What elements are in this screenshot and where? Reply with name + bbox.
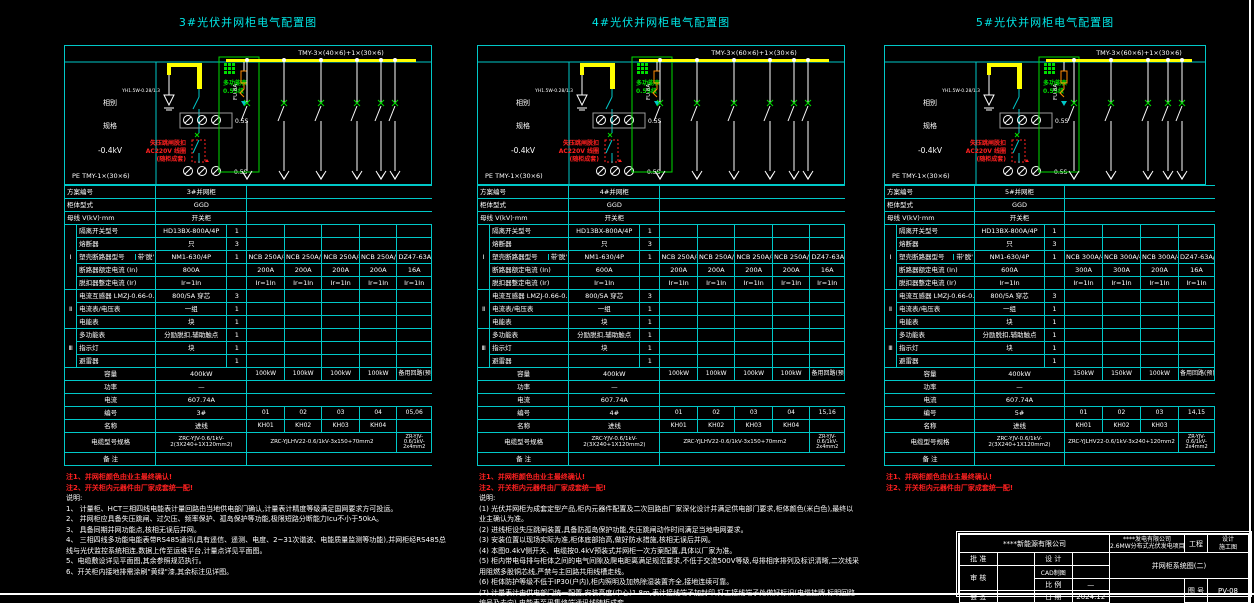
- arrester-label: YH1.5W-0.28/1.3: [534, 88, 573, 94]
- busbar-label: TMY-3×(60×6)+1×(30×6): [710, 49, 797, 57]
- feeder-cell: [772, 303, 810, 316]
- feeder-cell: [697, 342, 735, 355]
- spec-label: 规格: [103, 121, 117, 130]
- summary-feeder: KH02: [697, 420, 735, 433]
- row-value: 只: [975, 238, 1045, 251]
- feeder-cell: 16A: [1179, 264, 1215, 277]
- table-row: 方案编号3#并网柜: [65, 186, 432, 199]
- table-row: 母线 V(kV)·mm开关柜: [65, 212, 432, 225]
- summary-feeder: 100kW: [697, 368, 735, 381]
- row-label: 电流互感器 LMZJ-0.66-0.5级: [77, 290, 156, 303]
- summary-label: 容量: [478, 368, 569, 381]
- table-row: 熔断器只3: [478, 238, 845, 251]
- spec-label: 规格: [923, 121, 937, 130]
- header-label: 柜体型式: [478, 199, 569, 212]
- feeder-cell: 200A: [735, 264, 773, 277]
- table-row: 备 注: [65, 453, 432, 466]
- feeder-cell: [322, 342, 360, 355]
- table-row: 脱扣器整定电流 (Ir)Ir=1InIr=1InIr=1InIr=1InIr=1…: [885, 277, 1215, 290]
- table-row: 备 注: [478, 453, 845, 466]
- summary-feeder: 100kW: [247, 368, 285, 381]
- note-line: (1) 光伏并网柜为成套定型产品,柜内元器件配置及二次回路由厂家深化设计并满足供…: [479, 504, 859, 525]
- summary-feeder: 备用回路(预留): [1179, 368, 1215, 381]
- cable-span: ZRC-YJLHV22-0.6/1kV-3x150+70mm2: [660, 433, 810, 453]
- table-row: Ⅰ隔离开关型号HD13BX-800A/4P1: [478, 225, 845, 238]
- row-label: 指示灯: [897, 342, 975, 355]
- feeder-cell: 200A: [284, 264, 322, 277]
- summary-feeder: KH01: [247, 420, 285, 433]
- summary-feeder: KH03: [322, 420, 360, 433]
- summary-label: 电流: [885, 394, 975, 407]
- table-row: 电能表块1: [885, 316, 1215, 329]
- row-label: 电流表/电压表: [77, 303, 156, 316]
- row-value: 分励脱扣,辅助触点: [975, 329, 1045, 342]
- feeder-cell: [247, 225, 285, 238]
- feeder-cell: [810, 225, 845, 238]
- cable-last: ZR-YJV-0.6/1kV-2x4mm2: [810, 433, 845, 453]
- table-row: Ⅰ隔离开关型号HD13BX-800A/4P1: [65, 225, 432, 238]
- feeder-cell: [1179, 342, 1215, 355]
- note-line: 1、 计量柜、HCT三相四线电能表计量回路由当地供电部门确认,计量表计精度等级满…: [66, 504, 446, 515]
- row-value: 600A: [975, 264, 1045, 277]
- feeder-cell: [397, 316, 432, 329]
- feeder-cell: [1141, 225, 1179, 238]
- row-label: 熔断器: [77, 238, 156, 251]
- table-row: 指示灯块1: [65, 342, 432, 355]
- feeder-cell: [1065, 290, 1103, 303]
- project-name: ****发电有限公司2.6MW分布式光伏发电项目: [1110, 535, 1185, 553]
- feeder-cell: [810, 342, 845, 355]
- summary-feeder: 备用回路(预留): [810, 368, 845, 381]
- project-label: 工程: [1185, 535, 1208, 553]
- row-label: 多功能表: [897, 329, 975, 342]
- phase-label: 相别: [103, 98, 117, 107]
- row-qty: 1: [227, 251, 247, 264]
- header-label: 方案编号: [885, 186, 975, 199]
- summary-feeder: 04: [359, 407, 397, 420]
- row-value: 800/5A 穿芯: [156, 290, 227, 303]
- feeder-cell: [1179, 238, 1215, 251]
- arrester-label: YH1.5W-0.28/1.3: [941, 88, 980, 94]
- voltage-label: -0.4kV: [511, 146, 536, 155]
- feeder-cell: [735, 303, 773, 316]
- table-row: 熔断器只3: [65, 238, 432, 251]
- design-label: 设 计: [1035, 553, 1073, 566]
- table-row: 熔断器只3: [885, 238, 1215, 251]
- summary-value: 607.74A: [569, 394, 660, 407]
- row-qty: 1: [227, 355, 247, 368]
- feeder-cell: [1065, 238, 1103, 251]
- pe-bus-label: PE TMY-1×(30×6): [72, 172, 130, 180]
- row-label: 脱扣器整定电流 (Ir): [77, 277, 156, 290]
- row-label: 熔断器: [897, 238, 975, 251]
- feeder-cell: [322, 225, 360, 238]
- feeder-cell: [1141, 238, 1179, 251]
- feeder-cell: [397, 238, 432, 251]
- summary-label: 功率: [885, 381, 975, 394]
- feeder-cell: Ir=1In: [1179, 277, 1215, 290]
- table-row: Ⅲ多功能表分励脱扣,辅助触点1: [478, 329, 845, 342]
- date-label: 日 期: [1035, 591, 1073, 603]
- feeder-cell: [735, 290, 773, 303]
- cable-main: ZRC-YJV-0.6/1kV-2(3X240+1X120mm2): [975, 433, 1065, 453]
- metering-zone: [219, 57, 259, 172]
- header-value: 4#并网柜: [569, 186, 660, 199]
- feeder-cell: [247, 342, 285, 355]
- drawing-no-label: 图 号: [1185, 579, 1208, 603]
- table-row: 塑壳断路器型号带'脱'NM1-630/4P1NCB 250A/4PNCB 250…: [478, 251, 845, 264]
- feeder-cell: 200A: [660, 264, 698, 277]
- feeder-cell: [1065, 342, 1103, 355]
- row-qty: [227, 277, 247, 290]
- group-cell: Ⅰ: [885, 225, 897, 290]
- table-row: 名称进线KH01KH02KH03KH04: [478, 420, 845, 433]
- header-value: 开关柜: [156, 212, 247, 225]
- note-red-line: 注2、开关柜内元器件由厂家成套统一配!: [886, 483, 1254, 494]
- table-row: 塑壳断路器型号带'脱'NM1-630/4P1NCB 250A/4PNCB 250…: [65, 251, 432, 264]
- group-cell: Ⅲ: [478, 329, 490, 368]
- approve-value: [997, 553, 1035, 566]
- note-line: 6、开关柜内接地排需涂刷"黄绿"漆,其余标注见详图。: [66, 567, 446, 578]
- row-qty: 3: [1045, 290, 1065, 303]
- spec-table: 方案编号4#并网柜柜体型式GGD母线 V(kV)·mm开关柜Ⅰ隔离开关型号HD1…: [477, 185, 845, 466]
- summary-value: 607.74A: [975, 394, 1065, 407]
- header-value: 开关柜: [569, 212, 660, 225]
- feeder-cell: [772, 342, 810, 355]
- note-red-line: 注1、并网柜颜色由业主最终确认!: [886, 472, 1254, 483]
- row-value: 块: [569, 342, 640, 355]
- note-line: 4、 三相四线多功能电能表带RS485通讯(具有遥信、遥测、电度、2~31次谐波…: [66, 535, 446, 556]
- feeder-cell: [772, 225, 810, 238]
- table-row: Ⅲ多功能表分励脱扣,辅助触点1: [885, 329, 1215, 342]
- scale-label: 比 例: [1035, 579, 1073, 591]
- feeder-cell: [322, 290, 360, 303]
- meter-class-label: 0.5S: [1055, 118, 1069, 125]
- feeder-cell: [247, 238, 285, 251]
- fuse-label: FU 8A: [233, 84, 239, 100]
- cable-last: ZR-YJV-0.6/1kV-2x4mm2: [397, 433, 432, 453]
- table-row: 脱扣器整定电流 (Ir)Ir=1InIr=1InIr=1InIr=1InIr=1…: [478, 277, 845, 290]
- feeder-cell: [1141, 342, 1179, 355]
- summary-value: 400kW: [975, 368, 1065, 381]
- row-value: 一组: [156, 303, 227, 316]
- feeder-cell: [247, 329, 285, 342]
- trip-note-red: AC220V 线圈: [966, 147, 1006, 155]
- summary-value: 400kW: [156, 368, 247, 381]
- feeder-cell: [1103, 303, 1141, 316]
- feeder-cell: Ir=1In: [735, 277, 773, 290]
- table-row: 避雷器1: [885, 355, 1215, 368]
- fuse-label: FU 8A: [1053, 84, 1059, 100]
- table-row: Ⅱ电流互感器 LMZJ-0.66-0.5级800/5A 穿芯3: [478, 290, 845, 303]
- row-qty: 1: [227, 303, 247, 316]
- check-label: 审 核: [960, 566, 998, 591]
- row-value: Ir=1In: [156, 277, 227, 290]
- feeder-cell: [322, 355, 360, 368]
- check-value: [997, 566, 1035, 591]
- schematic-drawing: 相别规格-0.4kVPE TMY-1×(30×6)YH1.5W-0.28/1.3…: [64, 45, 432, 185]
- notes-title: 说明:: [479, 493, 859, 504]
- header-label: 母线 V(kV)·mm: [478, 212, 569, 225]
- row-qty: 1: [1045, 342, 1065, 355]
- summary-feeder: 02: [284, 407, 322, 420]
- summary-feeder: 03: [322, 407, 360, 420]
- feeder-cell: NCB 250A/4P: [322, 251, 360, 264]
- row-value: NM1-630/4P: [569, 251, 640, 264]
- row-qty: 1: [640, 329, 660, 342]
- row-label: 多功能表: [77, 329, 156, 342]
- summary-feeder: 备用回路(预留): [397, 368, 432, 381]
- feeder-cell: [735, 342, 773, 355]
- feeder-cell: 200A: [1141, 264, 1179, 277]
- row-label: 断路器额定电流 (In): [897, 264, 975, 277]
- feeder-cell: [660, 238, 698, 251]
- table-row: 备 注: [885, 453, 1215, 466]
- summary-feeder: 02: [697, 407, 735, 420]
- feeder-cell: Ir=1In: [322, 277, 360, 290]
- feeder-cell: [1179, 355, 1215, 368]
- feeder-cell: [247, 316, 285, 329]
- feeder-cell: DZ47-63A/3P: [810, 251, 845, 264]
- row-value: [569, 355, 640, 368]
- row-qty: 3: [227, 290, 247, 303]
- feeder-cell: [284, 238, 322, 251]
- row-label: 电流互感器 LMZJ-0.66-0.5级: [490, 290, 569, 303]
- table-row: 柜体型式GGD: [885, 199, 1215, 212]
- header-value: 开关柜: [975, 212, 1065, 225]
- feeder-cell: [359, 342, 397, 355]
- row-label: 脱扣器整定电流 (Ir): [490, 277, 569, 290]
- row-value: [975, 355, 1045, 368]
- table-row: 电缆型号规格ZRC-YJV-0.6/1kV-2(3X240+1X120mm2)Z…: [478, 433, 845, 453]
- summary-label: 容量: [885, 368, 975, 381]
- feeder-cell: [660, 342, 698, 355]
- table-row: 电缆型号规格ZRC-YJV-0.6/1kV-2(3X240+1X120mm2)Z…: [885, 433, 1215, 453]
- trip-note-red: 失压跳闸脱扣: [970, 139, 1006, 147]
- feeder-cell: Ir=1In: [1065, 277, 1103, 290]
- table-row: 电流表/电压表一组1: [885, 303, 1215, 316]
- row-qty: 1: [227, 316, 247, 329]
- table-row: 编号3#0102030405,06: [65, 407, 432, 420]
- row-qty: 1: [640, 303, 660, 316]
- notes-3: 注1、并网柜颜色由业主最终确认!注2、开关柜内元器件由厂家成套统一配!: [886, 472, 1254, 493]
- table-row: 断路器额定电流 (In)600A200A200A200A200A16A: [478, 264, 845, 277]
- note-line: (7) 计量表计由供电部门统一配置,安装高度(中心)1.8m,表计接线端子加封印…: [479, 588, 859, 603]
- feeder-cell: [359, 225, 397, 238]
- row-label: 避雷器: [490, 355, 569, 368]
- row-label: 指示灯: [490, 342, 569, 355]
- feeder-cell: [1103, 225, 1141, 238]
- drawing-no-value: PV-08: [1208, 579, 1249, 603]
- feeder-cell: [810, 303, 845, 316]
- cad-sheet: 3#光伏并网柜电气配置图相别规格-0.4kVPE TMY-1×(30×6)YH1…: [0, 0, 1254, 603]
- summary-feeder: KH03: [735, 420, 773, 433]
- feeder-cell: [397, 355, 432, 368]
- table-row: 编号4#0102030415,16: [478, 407, 845, 420]
- feeder-cell: [247, 290, 285, 303]
- pe-bus-label: PE TMY-1×(30×6): [485, 172, 543, 180]
- feeder-cell: 200A: [322, 264, 360, 277]
- notes-title: 说明:: [66, 493, 446, 504]
- row-label: 避雷器: [897, 355, 975, 368]
- row-qty: 1: [640, 225, 660, 238]
- table-row: 容量400kW100kW100kW100kW100kW备用回路(预留): [478, 368, 845, 381]
- row-label: 电能表: [77, 316, 156, 329]
- trip-note-red: AC220V 线圈: [146, 147, 186, 155]
- feeder-cell: [1141, 303, 1179, 316]
- feeder-cell: [772, 290, 810, 303]
- feeder-cell: [660, 225, 698, 238]
- voltage-label: -0.4kV: [918, 146, 943, 155]
- row-label: 熔断器: [490, 238, 569, 251]
- row-label: 隔离开关型号: [897, 225, 975, 238]
- row-value: 一组: [569, 303, 640, 316]
- table-row: 电缆型号规格ZRC-YJV-0.6/1kV-2(3X240+1X120mm2)Z…: [65, 433, 432, 453]
- feeder-cell: 200A: [247, 264, 285, 277]
- note-line: (4) 本图0.4kV侧开关、电缆按0.4kV预装式并网柜一次方案配置,具体以厂…: [479, 546, 859, 557]
- row-value: NM1-630/4P: [156, 251, 227, 264]
- feeder-cell: NCB 250A/4P: [247, 251, 285, 264]
- feeder-cell: [697, 225, 735, 238]
- metering-zone: [1039, 57, 1079, 172]
- header-label: 母线 V(kV)·mm: [65, 212, 156, 225]
- row-value: 600A: [569, 264, 640, 277]
- panel-title-1: 3#光伏并网柜电气配置图: [64, 14, 432, 30]
- feeder-cell: [284, 342, 322, 355]
- summary-feeder: 100kW: [772, 368, 810, 381]
- row-value: 块: [156, 316, 227, 329]
- feeder-cell: [1065, 316, 1103, 329]
- feeder-cell: [1179, 290, 1215, 303]
- row-value: [156, 355, 227, 368]
- feeder-cell: [735, 329, 773, 342]
- table-row: 塑壳断路器型号带'脱'NM1-630/4P1NCB 300A/4PNCB 300…: [885, 251, 1215, 264]
- cad-value: [1072, 566, 1110, 579]
- group-cell: Ⅱ: [885, 290, 897, 329]
- sign-label: 会 签: [960, 591, 998, 603]
- summary-label: 电缆型号规格: [478, 433, 569, 453]
- summary-feeder: 100kW: [284, 368, 322, 381]
- feeder-cell: [322, 303, 360, 316]
- summary-feeder: 150kW: [1103, 368, 1141, 381]
- feeder-cell: [735, 238, 773, 251]
- row-value: NM1-630/4P: [975, 251, 1045, 264]
- feeder-cell: Ir=1In: [1141, 277, 1179, 290]
- table-row: 断路器额定电流 (In)800A200A200A200A200A16A: [65, 264, 432, 277]
- notes-2: 注1、并网柜颜色由业主最终确认!注2、开关柜内元器件由厂家成套统一配!说明:(1…: [479, 472, 859, 603]
- feeder-cell: [359, 316, 397, 329]
- feeder-cell: [1141, 316, 1179, 329]
- table-row: 母线 V(kV)·mm开关柜: [885, 212, 1215, 225]
- row-value: 分励脱扣,辅助触点: [156, 329, 227, 342]
- table-row: 容量400kW150kW150kW100kW备用回路(预留): [885, 368, 1215, 381]
- surge-arrester-icon: [164, 95, 174, 105]
- feeder-cell: NCB 250A/4P: [697, 251, 735, 264]
- feeder-cell: 200A: [697, 264, 735, 277]
- feeder-cell: 16A: [810, 264, 845, 277]
- feeder-cell: [697, 329, 735, 342]
- feeder-cell: [284, 303, 322, 316]
- feeder-cell: 200A: [772, 264, 810, 277]
- table-row: 柜体型式GGD: [478, 199, 845, 212]
- feeder-cell: [1141, 329, 1179, 342]
- table-row: 避雷器1: [65, 355, 432, 368]
- feeder-cell: DZ47-63A/3P: [1179, 251, 1215, 264]
- summary-feeder: 03: [1141, 407, 1179, 420]
- main-busbar: [1046, 59, 1192, 62]
- note-line: 5、电缆敷设详见平面图,其余参照规范执行。: [66, 556, 446, 567]
- row-qty: 3: [1045, 238, 1065, 251]
- table-row: 电流607.74A: [65, 394, 432, 407]
- busbar-label: TMY-3×(60×6)+1×(30×6): [1095, 49, 1182, 57]
- voltage-label: -0.4kV: [98, 146, 123, 155]
- design-value: [1072, 553, 1110, 566]
- feeder-cell: NCB 300A/4P: [1141, 251, 1179, 264]
- feeder-cell: [810, 355, 845, 368]
- row-qty: 1: [1045, 303, 1065, 316]
- summary-value: 进线: [156, 420, 247, 433]
- note-red-line: 注1、并网柜颜色由业主最终确认!: [479, 472, 859, 483]
- row-qty: 1: [640, 251, 660, 264]
- cable-main: ZRC-YJV-0.6/1kV-2(3X240+1X120mm2): [156, 433, 247, 453]
- feeder-cell: Ir=1In: [397, 277, 432, 290]
- feeder-cell: [1103, 329, 1141, 342]
- feeder-cell: Ir=1In: [284, 277, 322, 290]
- note-line: (6) 柜体防护等级不低于IP30(户内),柜内照明及加热除湿装置齐全,接地连续…: [479, 577, 859, 588]
- feeder-cell: NCB 250A/4P: [660, 251, 698, 264]
- summary-value: 3#: [156, 407, 247, 420]
- feeder-cell: [810, 238, 845, 251]
- header-label: 方案编号: [478, 186, 569, 199]
- feeder-cell: [397, 342, 432, 355]
- note-line: (2) 进线柜设失压跳闸装置,具备防孤岛保护功能,失压跳闸动作时间满足当地电网要…: [479, 525, 859, 536]
- row-value: 块: [156, 342, 227, 355]
- note-red-line: 注2、开关柜内元器件由厂家成套统一配!: [66, 483, 446, 494]
- summary-value: —: [975, 381, 1065, 394]
- feeder-cell: [735, 316, 773, 329]
- note-line: (3) 安装位置以现场实际为准,柜体底部抬高,做好防水措施,核相无误后并网。: [479, 535, 859, 546]
- row-value: HD13BX-800A/4P: [569, 225, 640, 238]
- feeder-cell: NCB 250A/4P: [359, 251, 397, 264]
- feeder-cell: [1065, 329, 1103, 342]
- table-row: 方案编号4#并网柜: [478, 186, 845, 199]
- row-qty: 3: [640, 238, 660, 251]
- summary-feeder: 04: [772, 407, 810, 420]
- spec-label: 规格: [516, 121, 530, 130]
- trip-note-red: AC220V 线圈: [559, 147, 599, 155]
- row-value: Ir=1In: [569, 277, 640, 290]
- trip-note-red: (随柜成套): [157, 155, 187, 163]
- note-red-line: 注2、开关柜内元器件由厂家成套统一配!: [479, 483, 859, 494]
- summary-feeder: KH04: [772, 420, 810, 433]
- feeder-cell: Ir=1In: [247, 277, 285, 290]
- feeder-cell: [1103, 290, 1141, 303]
- summary-feeder: [810, 420, 845, 433]
- row-label: 避雷器: [77, 355, 156, 368]
- row-label: 电能表: [490, 316, 569, 329]
- summary-label: 备 注: [478, 453, 569, 466]
- feeder-cell: [660, 355, 698, 368]
- feeder-cell: [772, 355, 810, 368]
- row-qty: 1: [640, 342, 660, 355]
- summary-value: 5#: [975, 407, 1065, 420]
- row-label: 多功能表: [490, 329, 569, 342]
- panel-1: 3#光伏并网柜电气配置图相别规格-0.4kVPE TMY-1×(30×6)YH1…: [64, 14, 432, 594]
- row-qty: 1: [1045, 355, 1065, 368]
- feeder-cell: NCB 250A/4P: [735, 251, 773, 264]
- feeder-cell: [697, 238, 735, 251]
- summary-feeder: KH01: [660, 420, 698, 433]
